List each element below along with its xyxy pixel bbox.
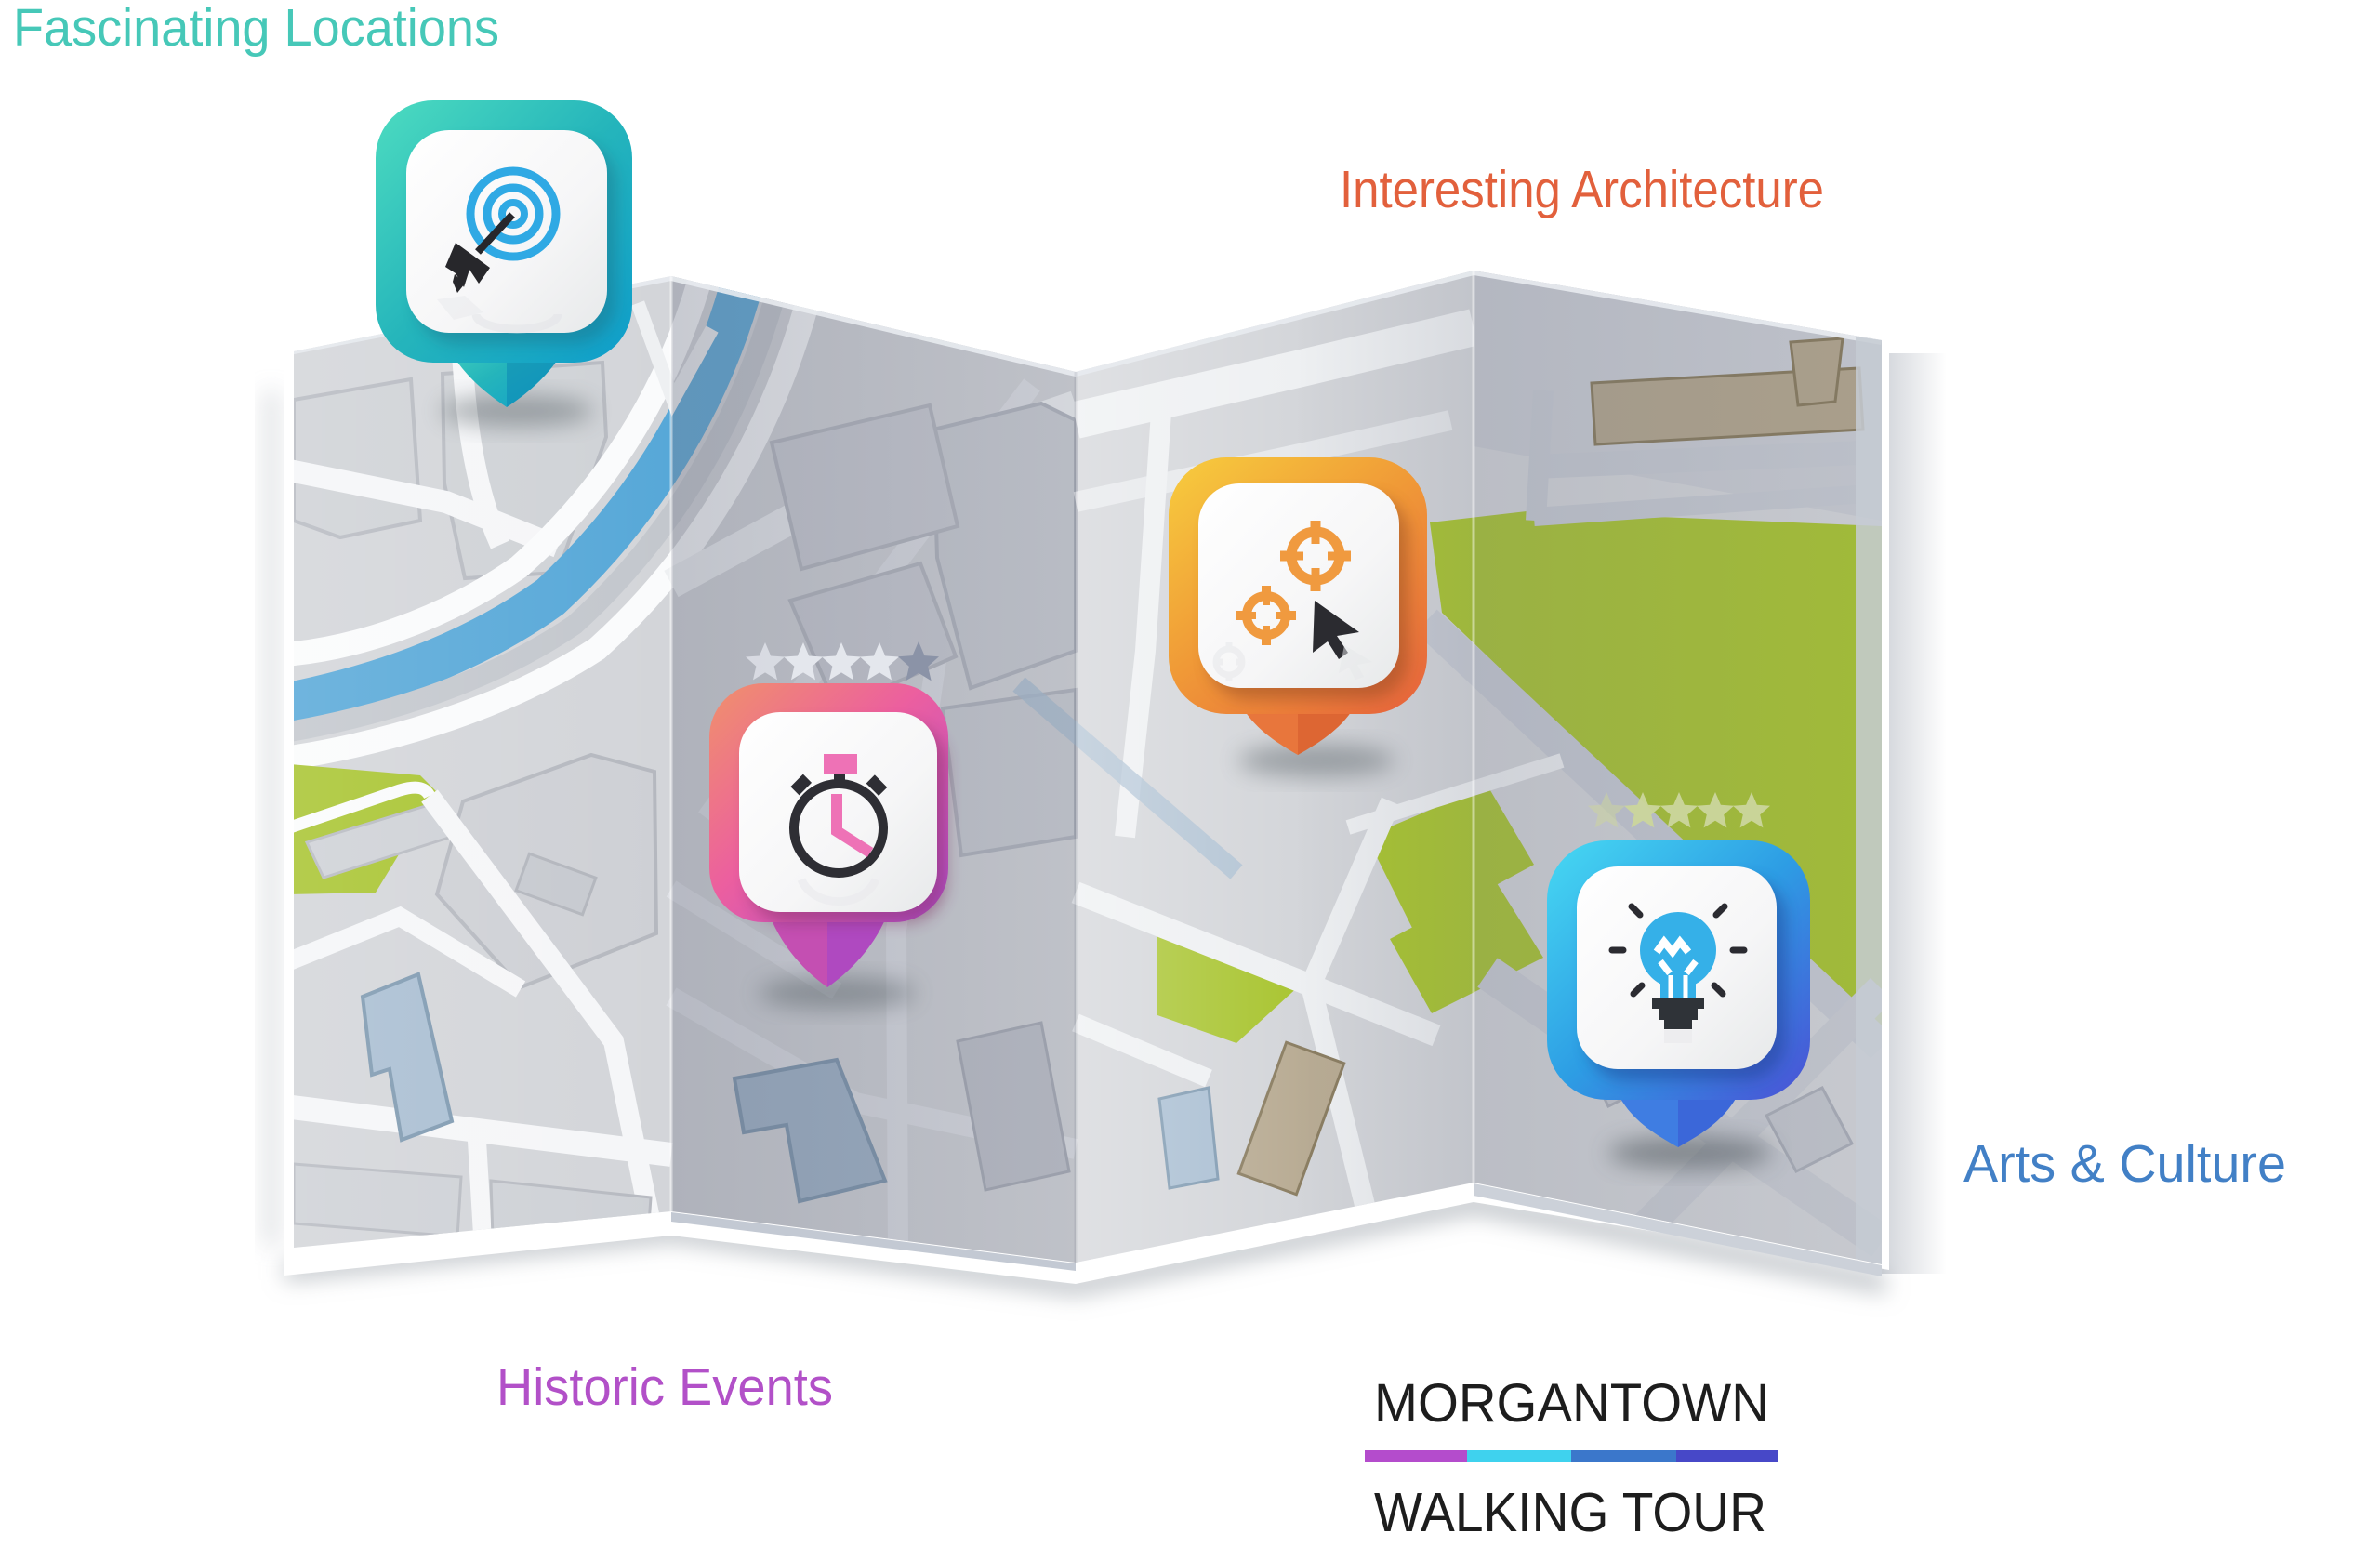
svg-text:MORGANTOWN: MORGANTOWN: [1374, 1373, 1769, 1434]
svg-text:Fascinating Locations: Fascinating Locations: [13, 0, 499, 58]
svg-text:Arts & Culture: Arts & Culture: [1963, 1134, 2286, 1194]
svg-text:WALKING TOUR: WALKING TOUR: [1374, 1482, 1766, 1543]
svg-text:Historic Events: Historic Events: [496, 1357, 833, 1417]
svg-text:Interesting Architecture: Interesting Architecture: [1340, 160, 1824, 219]
